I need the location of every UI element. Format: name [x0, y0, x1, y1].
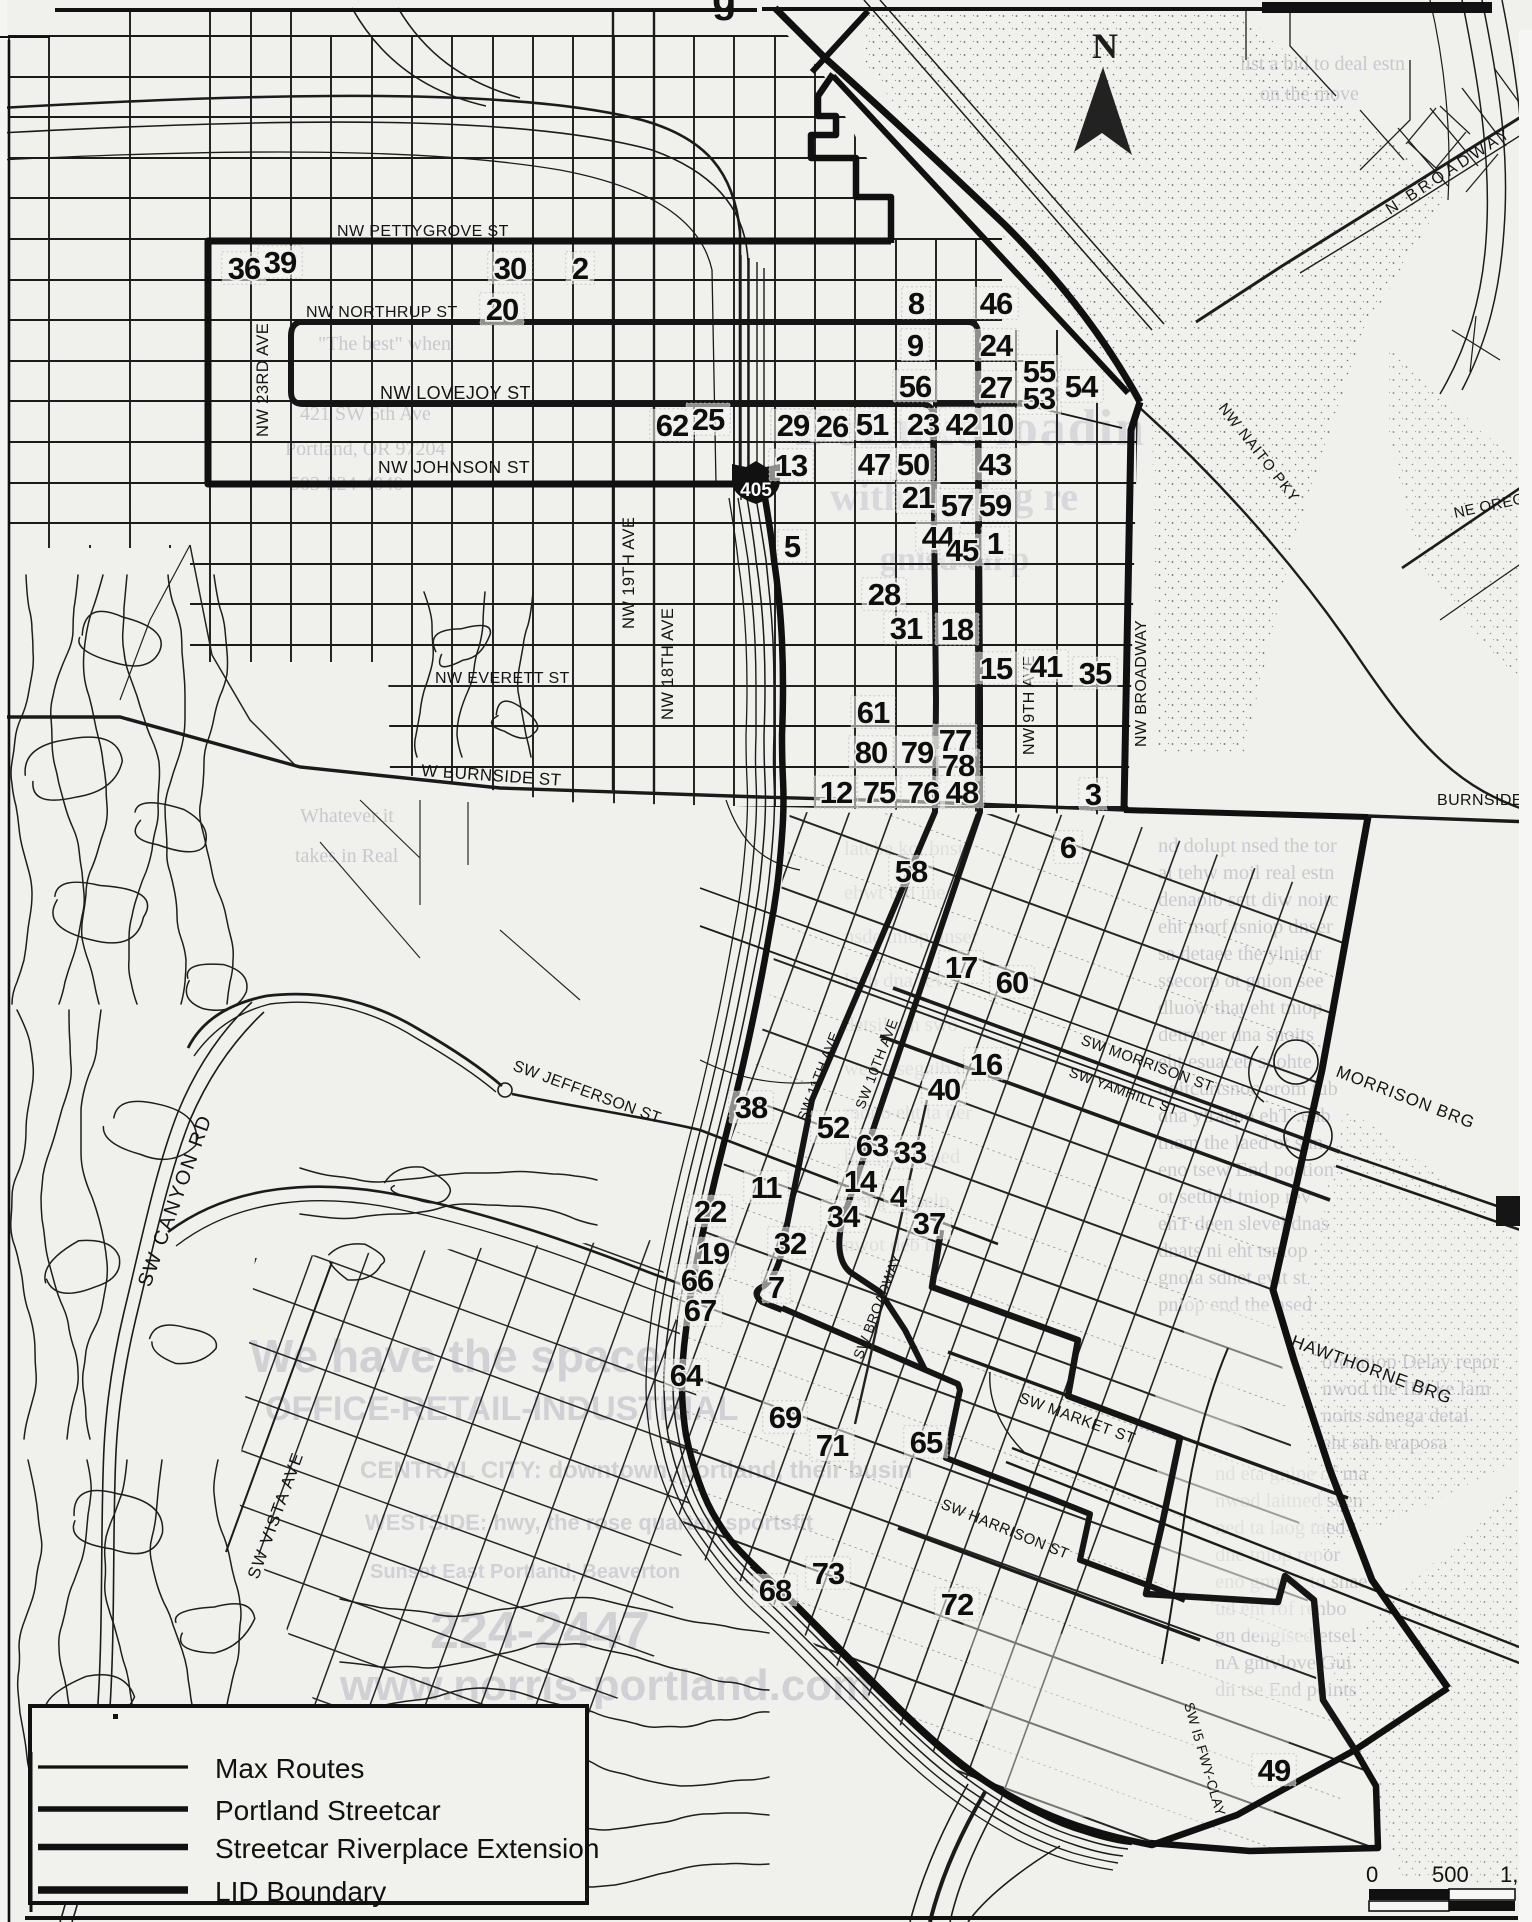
svg-text:37: 37 [913, 1206, 945, 1241]
svg-text:46: 46 [980, 286, 1013, 321]
svg-text:NW EVERETT ST: NW EVERETT ST [435, 670, 570, 687]
svg-text:76: 76 [907, 775, 940, 810]
svg-text:47: 47 [858, 447, 890, 482]
svg-text:24: 24 [980, 328, 1014, 363]
svg-text:32: 32 [774, 1226, 806, 1261]
svg-text:17: 17 [945, 950, 977, 985]
svg-text:25: 25 [692, 402, 725, 437]
svg-text:57: 57 [941, 488, 973, 523]
svg-text:7: 7 [768, 1270, 784, 1305]
svg-text:LID Boundary: LID Boundary [215, 1876, 386, 1907]
svg-text:30: 30 [494, 251, 526, 286]
svg-text:27: 27 [980, 370, 1012, 405]
svg-text:63: 63 [856, 1128, 889, 1163]
svg-text:10: 10 [981, 407, 1013, 442]
svg-text:18: 18 [941, 612, 974, 647]
svg-text:21: 21 [902, 480, 935, 515]
svg-text:53: 53 [1023, 381, 1056, 416]
svg-text:34: 34 [827, 1199, 861, 1234]
svg-text:28: 28 [868, 577, 901, 612]
svg-text:5: 5 [784, 529, 801, 564]
svg-text:40: 40 [928, 1072, 960, 1107]
svg-text:sa detaee the ylniatr: sa detaee the ylniatr [1158, 943, 1322, 965]
svg-text:9: 9 [907, 328, 924, 363]
svg-text:Streetcar Riverplace Extension: Streetcar Riverplace Extension [215, 1833, 599, 1864]
svg-text:3: 3 [1085, 777, 1102, 812]
svg-text:6: 6 [1060, 830, 1077, 865]
svg-text:12: 12 [820, 775, 852, 810]
svg-text:80: 80 [855, 735, 887, 770]
svg-text:gnola sdnet evit st: gnola sdnet evit st [1158, 1267, 1307, 1289]
svg-text:NW BROADWAY: NW BROADWAY [1133, 620, 1150, 747]
svg-text:NW LOVEJOY ST: NW LOVEJOY ST [380, 383, 531, 403]
svg-text:73: 73 [812, 1556, 845, 1591]
svg-text:71: 71 [816, 1428, 849, 1463]
svg-text:51: 51 [856, 407, 889, 442]
svg-text:8: 8 [908, 286, 925, 321]
svg-text:43: 43 [979, 447, 1012, 482]
svg-text:NW 18TH AVE: NW 18TH AVE [659, 608, 677, 720]
svg-text:OFFICE-RETAIL-INDUSTRIAL: OFFICE-RETAIL-INDUSTRIAL [265, 1390, 738, 1428]
svg-text:39: 39 [264, 245, 297, 280]
svg-text:Portland Streetcar: Portland Streetcar [215, 1795, 441, 1826]
svg-text:41: 41 [1030, 649, 1063, 684]
svg-text:68: 68 [759, 1573, 792, 1608]
svg-text:69: 69 [769, 1400, 802, 1435]
svg-text:"The best" when: "The best" when [318, 333, 451, 355]
svg-text:60: 60 [996, 965, 1028, 1000]
svg-text:NW NORTHRUP ST: NW NORTHRUP ST [306, 304, 458, 321]
svg-text:22: 22 [694, 1194, 726, 1229]
svg-text:62: 62 [656, 408, 688, 443]
svg-text:13: 13 [775, 448, 808, 483]
svg-text:79: 79 [901, 735, 934, 770]
svg-text:36: 36 [228, 251, 261, 286]
svg-text:48: 48 [946, 775, 979, 810]
svg-text:58: 58 [895, 854, 928, 889]
svg-text:1: 1 [987, 526, 1004, 561]
svg-text:Max Routes: Max Routes [215, 1753, 364, 1784]
svg-text:ai tehw moil real estn: ai tehw moil real estn [1158, 862, 1334, 884]
svg-text:23: 23 [907, 407, 940, 442]
svg-text:14: 14 [844, 1164, 878, 1199]
svg-text:BURNSIDE: BURNSIDE [1437, 792, 1523, 809]
svg-text:61: 61 [857, 695, 890, 730]
svg-text:59: 59 [979, 488, 1012, 523]
svg-text:g: g [712, 0, 736, 21]
svg-text:detsil ton swo: detsil ton swo [844, 1014, 958, 1036]
svg-text:75: 75 [863, 775, 896, 810]
svg-text:NW JOHNSON ST: NW JOHNSON ST [378, 457, 530, 477]
svg-text:Sunset East Portland, Beaverto: Sunset East Portland, Beaverton [370, 1561, 680, 1583]
svg-text:38: 38 [735, 1090, 768, 1125]
svg-text:29: 29 [777, 408, 810, 443]
svg-text:11: 11 [751, 1170, 783, 1205]
svg-text:31: 31 [890, 611, 923, 646]
svg-text:2: 2 [572, 251, 588, 286]
svg-text:54: 54 [1065, 369, 1099, 404]
svg-text:0: 0 [1366, 1862, 1378, 1887]
svg-text:nd dolupt nsed the tor: nd dolupt nsed the tor [1158, 835, 1337, 857]
svg-text:1,: 1, [1500, 1862, 1518, 1887]
svg-text:42: 42 [946, 407, 978, 442]
svg-text:56: 56 [899, 369, 932, 404]
svg-text:4: 4 [890, 1179, 908, 1214]
svg-text:ehT deen slevel dnas: ehT deen slevel dnas [1158, 1213, 1329, 1235]
svg-text:20: 20 [486, 292, 518, 327]
svg-text:405: 405 [740, 480, 772, 501]
svg-text:N: N [1092, 26, 1118, 66]
svg-text:500: 500 [1432, 1862, 1469, 1887]
svg-text:67: 67 [684, 1293, 716, 1328]
svg-text:50: 50 [897, 447, 929, 482]
svg-text:52: 52 [817, 1110, 849, 1145]
svg-text:64: 64 [670, 1358, 704, 1393]
svg-text:35: 35 [1079, 656, 1112, 691]
svg-text:takes in Real: takes in Real [295, 845, 399, 867]
svg-text:49: 49 [1258, 1753, 1291, 1788]
svg-text:15: 15 [980, 651, 1013, 686]
svg-text:224-2447: 224-2447 [430, 1602, 650, 1660]
svg-text:72: 72 [941, 1587, 973, 1622]
svg-text:eht morf tsniop dnser: eht morf tsniop dnser [1158, 916, 1333, 938]
svg-text:NW PETTYGROVE ST: NW PETTYGROVE ST [337, 223, 509, 240]
svg-text:Whatever it: Whatever it [300, 805, 394, 827]
svg-text:45: 45 [946, 533, 979, 568]
svg-text:26: 26 [816, 409, 849, 444]
svg-text:65: 65 [910, 1425, 943, 1460]
svg-text:We have the space: We have the space [250, 1330, 661, 1382]
svg-text:NW 23RD AVE: NW 23RD AVE [254, 323, 272, 437]
svg-text:33: 33 [894, 1135, 927, 1170]
svg-text:16: 16 [970, 1047, 1003, 1082]
svg-text:NW 19TH AVE: NW 19TH AVE [620, 517, 638, 629]
svg-text:nsde tniop dnser: nsde tniop dnser [844, 926, 979, 948]
